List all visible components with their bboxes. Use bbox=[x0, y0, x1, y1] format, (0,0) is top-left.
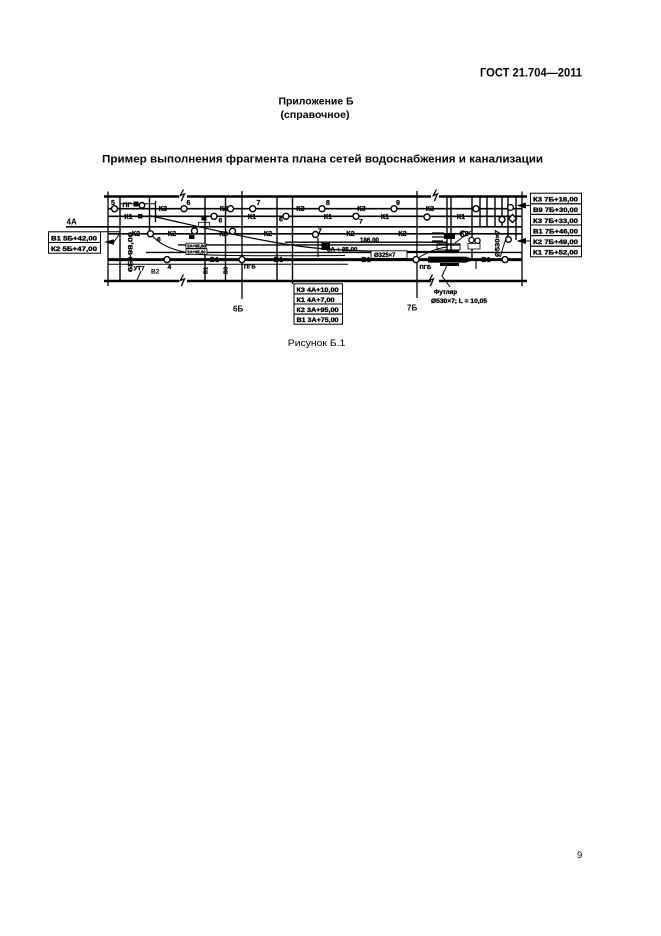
svg-text:К2: К2 bbox=[168, 229, 176, 238]
svg-text:К1 4А+7,00: К1 4А+7,00 bbox=[297, 297, 336, 304]
svg-text:В1: В1 bbox=[204, 267, 210, 274]
svg-text:В1 7Б+46,00: В1 7Б+46,00 bbox=[533, 228, 578, 235]
svg-text:6Б: 6Б bbox=[233, 305, 243, 314]
svg-text:В1 5Б+42,00: В1 5Б+42,00 bbox=[51, 235, 97, 242]
svg-text:8: 8 bbox=[326, 200, 330, 207]
svg-text:9: 9 bbox=[396, 200, 400, 207]
svg-text:В1: В1 bbox=[361, 255, 370, 264]
svg-text:К1 7Б+52,00: К1 7Б+52,00 bbox=[533, 250, 578, 257]
svg-text:ЗА+85,00: ЗА+85,00 bbox=[187, 244, 206, 249]
svg-text:Ø530×7; L = 10,05: Ø530×7; L = 10,05 bbox=[431, 298, 488, 305]
svg-text:К3 7Б+33,00: К3 7Б+33,00 bbox=[533, 218, 578, 225]
svg-text:В3: В3 bbox=[224, 267, 230, 274]
svg-text:К2 5Б+47,00: К2 5Б+47,00 bbox=[51, 246, 97, 253]
svg-text:5: 5 bbox=[111, 200, 115, 207]
svg-text:К1: К1 bbox=[124, 212, 132, 221]
svg-text:(справочное): (справочное) bbox=[281, 110, 350, 121]
svg-text:К2 7Б+49,00: К2 7Б+49,00 bbox=[533, 239, 578, 246]
svg-text:УТ7: УТ7 bbox=[134, 266, 146, 273]
svg-text:ЗА+85,00: ЗА+85,00 bbox=[187, 249, 206, 254]
svg-text:6: 6 bbox=[219, 218, 223, 225]
svg-text:186,00: 186,00 bbox=[360, 237, 379, 244]
svg-text:ПГБ: ПГБ bbox=[244, 265, 256, 271]
svg-text:Пример выполнения фрагмента пл: Пример выполнения фрагмента плана сетей … bbox=[102, 153, 543, 165]
svg-text:6: 6 bbox=[279, 217, 283, 224]
svg-text:Ø325×7: Ø325×7 bbox=[374, 253, 396, 259]
svg-text:К3: К3 bbox=[426, 204, 434, 213]
svg-text:3А + 85,00: 3А + 85,00 bbox=[327, 247, 358, 254]
svg-text:6Б+98,00: 6Б+98,00 bbox=[128, 231, 135, 272]
svg-text:К3: К3 bbox=[220, 204, 228, 213]
svg-text:К1: К1 bbox=[381, 212, 389, 221]
svg-text:К3 4А+10,00: К3 4А+10,00 bbox=[297, 287, 340, 294]
svg-text:7Б: 7Б bbox=[407, 304, 417, 313]
svg-text:К2 3А+95,00: К2 3А+95,00 bbox=[297, 307, 340, 314]
svg-text:К2: К2 bbox=[460, 229, 468, 238]
svg-text:В1: В1 bbox=[210, 255, 219, 264]
svg-text:К2: К2 bbox=[398, 229, 406, 238]
svg-text:4А: 4А bbox=[67, 218, 77, 227]
svg-text:К3: К3 bbox=[159, 204, 167, 213]
svg-text:К2: К2 bbox=[346, 229, 354, 238]
svg-text:К1: К1 bbox=[457, 212, 465, 221]
svg-text:7: 7 bbox=[359, 219, 363, 226]
svg-text:В1: В1 bbox=[274, 255, 283, 264]
svg-text:9: 9 bbox=[577, 850, 582, 861]
svg-text:В9 7Б+30,00: В9 7Б+30,00 bbox=[533, 207, 578, 214]
svg-text:В1 3А+75,00: В1 3А+75,00 bbox=[297, 317, 340, 324]
svg-text:6: 6 bbox=[157, 237, 161, 244]
svg-text:ПГ: ПГ bbox=[123, 202, 132, 209]
svg-text:К3: К3 bbox=[296, 204, 304, 213]
svg-text:ПГБ: ПГБ bbox=[420, 265, 432, 271]
svg-text:Рисунок Б.1: Рисунок Б.1 bbox=[288, 338, 346, 349]
svg-text:ГОСТ 21.704—2011: ГОСТ 21.704—2011 bbox=[480, 68, 583, 80]
svg-text:К3: К3 bbox=[357, 204, 365, 213]
svg-text:Приложение Б: Приложение Б bbox=[279, 96, 354, 107]
svg-text:К2: К2 bbox=[219, 229, 227, 238]
svg-text:К2: К2 bbox=[264, 229, 272, 238]
svg-text:В1: В1 bbox=[481, 255, 490, 264]
svg-text:К3 7Б+18,00: К3 7Б+18,00 bbox=[533, 197, 578, 204]
svg-text:К1: К1 bbox=[324, 212, 332, 221]
svg-text:4: 4 bbox=[168, 264, 172, 271]
svg-text:7: 7 bbox=[257, 200, 261, 207]
svg-text:7: 7 bbox=[318, 228, 322, 235]
svg-text:6: 6 bbox=[187, 200, 191, 207]
svg-text:В2: В2 bbox=[151, 269, 160, 276]
svg-text:Футляр: Футляр bbox=[434, 289, 457, 296]
svg-text:К1: К1 bbox=[248, 212, 256, 221]
svg-text:Ø530×7: Ø530×7 bbox=[496, 229, 502, 257]
